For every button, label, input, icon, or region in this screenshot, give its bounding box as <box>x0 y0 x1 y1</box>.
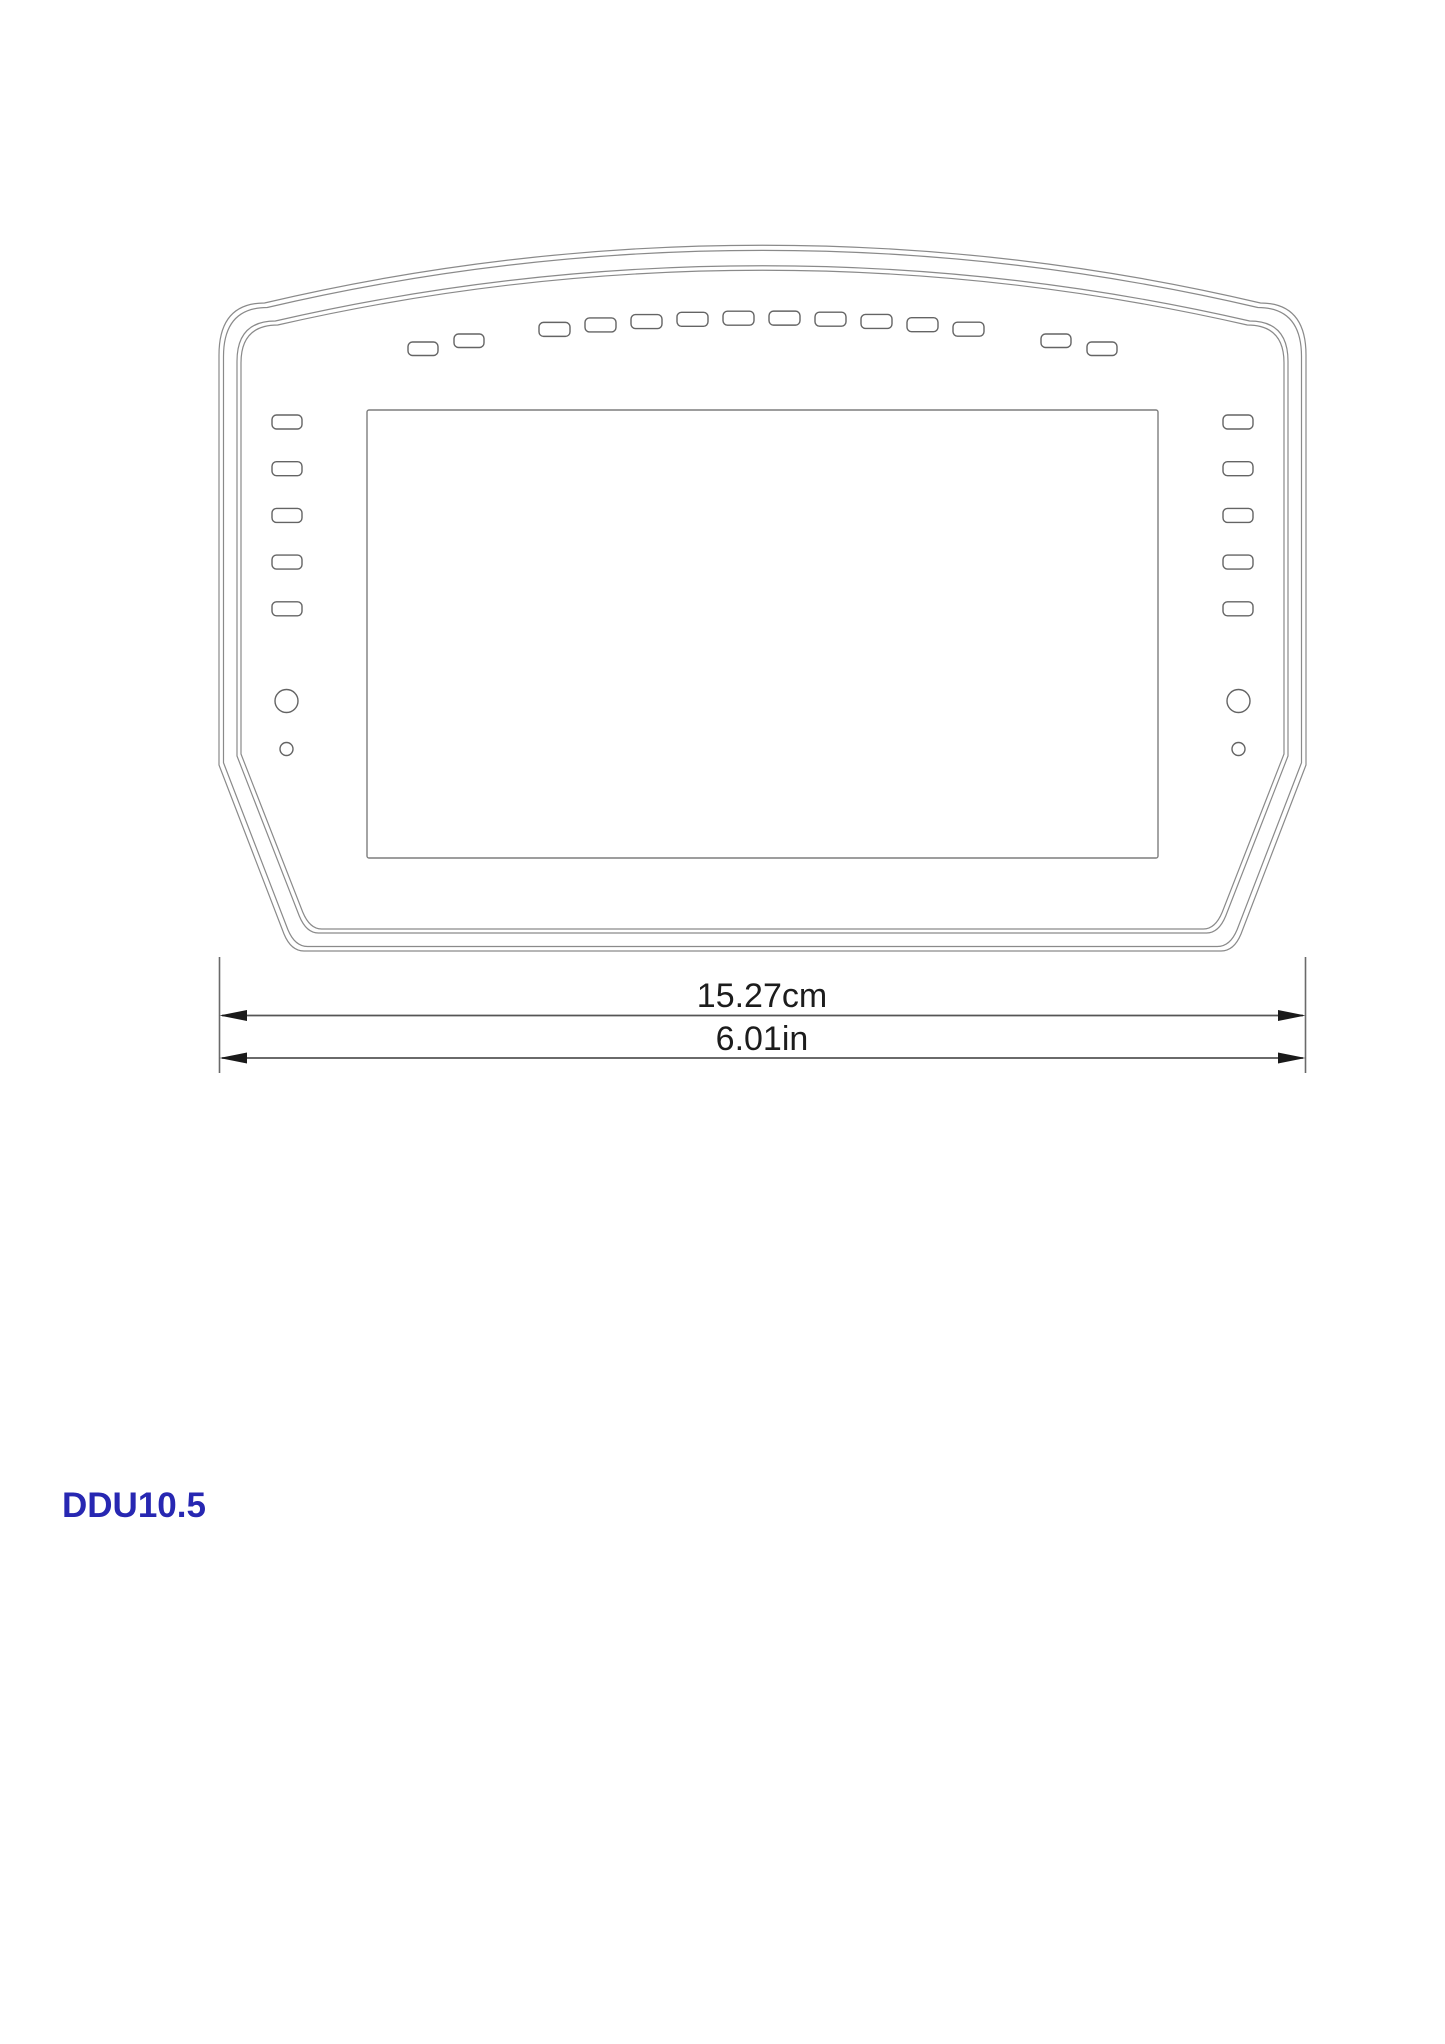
top-right-pair-led <box>1041 334 1071 348</box>
top-led <box>631 315 662 329</box>
top-left-pair-led <box>454 334 484 348</box>
arrowhead-right-imperial <box>1278 1053 1306 1064</box>
top-led <box>677 312 708 326</box>
dimension-imperial: 6.01in <box>220 1020 1306 1064</box>
technical-drawing: 15.27cm 6.01in DDU10.5 <box>0 0 1445 2044</box>
housing-inner-contour <box>237 266 1288 933</box>
top-left-pair-led <box>408 342 438 356</box>
top-led <box>907 318 938 332</box>
top-led <box>861 314 892 328</box>
top-led <box>723 311 754 325</box>
left-small-button-circle <box>280 743 293 756</box>
dimension-metric: 15.27cm <box>220 977 1306 1021</box>
page: 15.27cm 6.01in DDU10.5 <box>0 0 1445 2044</box>
housing-outer-contour-inner-line <box>224 250 1302 946</box>
side-buttons <box>275 690 1250 756</box>
right-column-led <box>1223 555 1253 569</box>
left-column-led <box>272 462 302 476</box>
left-large-button-circle <box>275 690 298 713</box>
top-led <box>815 312 846 326</box>
led-indicators <box>272 311 1253 616</box>
screen-area <box>367 410 1158 858</box>
top-led <box>539 322 570 336</box>
product-label: DDU10.5 <box>62 1486 206 1525</box>
dimension-annotations: 15.27cm 6.01in <box>220 957 1306 1073</box>
dimension-imperial-label: 6.01in <box>716 1020 809 1058</box>
arrowhead-left-metric <box>220 1010 248 1021</box>
left-column-led <box>272 602 302 616</box>
dimension-metric-label: 15.27cm <box>697 977 827 1015</box>
right-column-led <box>1223 462 1253 476</box>
left-column-led <box>272 555 302 569</box>
left-column-led <box>272 508 302 522</box>
top-led <box>585 318 616 332</box>
top-right-pair-led <box>1087 342 1117 356</box>
right-small-button-circle <box>1232 743 1245 756</box>
top-led <box>953 322 984 336</box>
device-outline <box>219 245 1306 951</box>
right-column-led <box>1223 415 1253 429</box>
top-led <box>769 311 800 325</box>
screen <box>367 410 1158 858</box>
right-column-led <box>1223 602 1253 616</box>
right-column-led <box>1223 508 1253 522</box>
arrowhead-left-imperial <box>220 1053 248 1064</box>
arrowhead-right-metric <box>1278 1010 1306 1021</box>
housing-outer-contour <box>219 245 1306 951</box>
right-large-button-circle <box>1227 690 1250 713</box>
left-column-led <box>272 415 302 429</box>
housing-inner-contour-inner-line <box>241 270 1284 929</box>
